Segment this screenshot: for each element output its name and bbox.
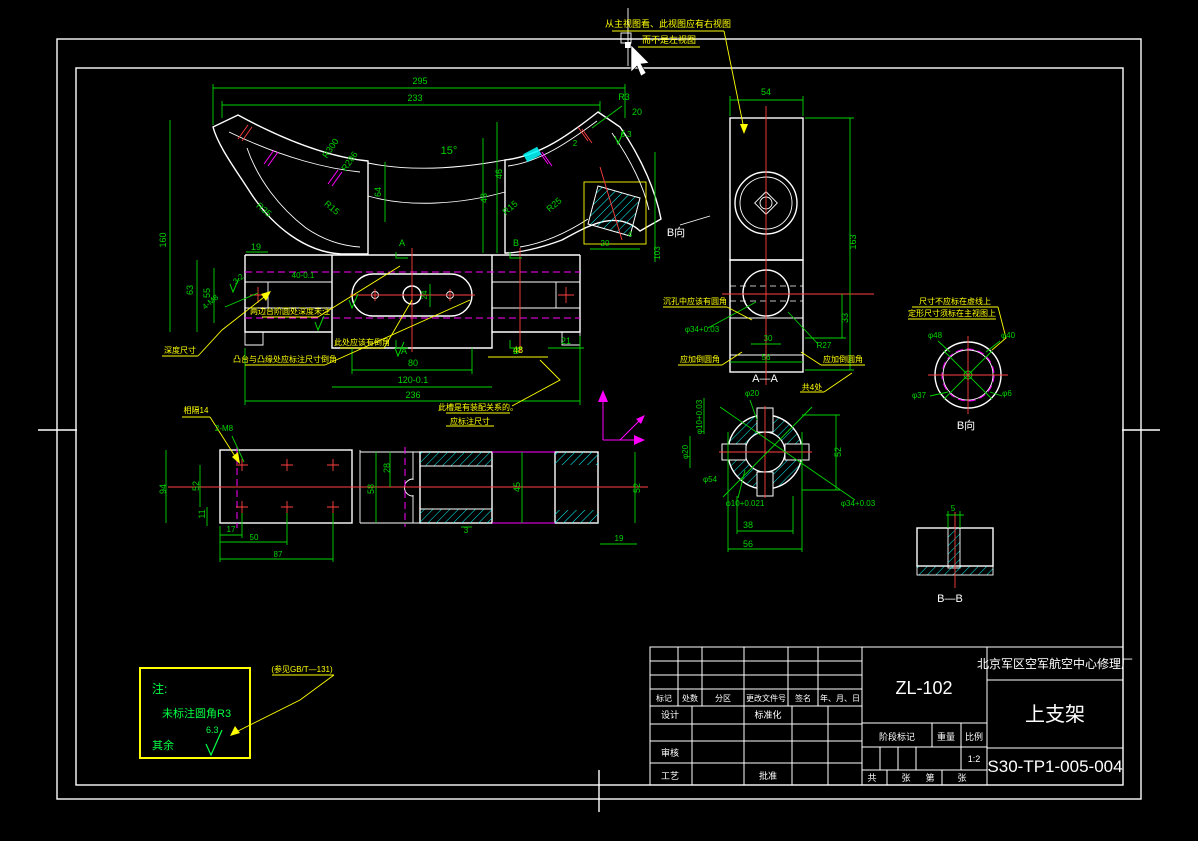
tb-sheet-unit2: 张 <box>957 773 966 783</box>
review-annotation: 相隔14 <box>184 405 209 415</box>
tb-part-name: 上支架 <box>1025 703 1085 726</box>
dimension-label: 295 <box>412 76 427 86</box>
note-line1: 未标注圆角R3 <box>162 706 231 720</box>
dimension-label: 4 <box>628 230 633 239</box>
dimension-label: B <box>513 238 519 248</box>
tb-col-mark: 标记 <box>656 693 672 703</box>
dimension-label: 52 <box>833 447 843 457</box>
review-annotation: 此处应该有倒角 <box>334 337 390 347</box>
dimension-label: 43 <box>479 193 489 203</box>
dimension-label: φ48 <box>928 331 943 340</box>
dimension-label: 19 <box>615 534 624 543</box>
view-label-b-direction: B向 <box>667 225 685 239</box>
dimension-label: 64 <box>373 187 383 197</box>
dimension-label: φ54 <box>703 475 718 484</box>
tb-model: ZL-102 <box>895 678 952 698</box>
dimension-label: 3 <box>464 526 469 535</box>
dimension-label: 20 <box>601 239 610 248</box>
tb-sheet-total-label: 共 <box>867 773 876 783</box>
tb-sheet-no-label: 第 <box>925 772 934 783</box>
dimension-label: R286 <box>339 150 360 173</box>
review-annotation: 深度尺寸 <box>164 345 196 355</box>
tb-col-zone: 分区 <box>715 694 731 703</box>
dimension-label: A <box>399 238 405 248</box>
dimension-label: φ10+0.03 <box>695 399 704 434</box>
review-annotation-leaders <box>162 31 1006 464</box>
dimension-label: 2 <box>573 139 578 148</box>
dimension-label: 11 <box>197 509 207 518</box>
dimension-label: 24 <box>420 290 429 299</box>
dimension-label: 19 <box>251 242 261 252</box>
dimension-label: 103 <box>653 246 662 260</box>
dimension-label: 52 <box>632 483 642 493</box>
dimension-label: 3.2 <box>231 272 246 286</box>
tb-col-count: 处数 <box>682 693 698 703</box>
review-annotation: 沉孔中应该有圆角 <box>663 296 727 306</box>
note-box: 注: 未标注圆角R3 其余 6.3 <box>140 668 334 758</box>
section-b-b <box>917 511 993 588</box>
tb-drawing-no: S30-TP1-005-004 <box>987 757 1122 776</box>
dimension-label: R15 <box>501 199 520 217</box>
dimension-label: 46 <box>494 169 504 179</box>
review-annotation: 尺寸不应标在虚线上 <box>919 296 991 306</box>
note-heading: 注: <box>152 681 167 696</box>
dimension-label: 80 <box>408 358 418 368</box>
dimension-label: R35 <box>254 201 273 219</box>
tb-weight-label: 重量 <box>937 731 955 742</box>
tb-stage-label: 阶段标记 <box>879 731 915 742</box>
dimension-label: R15 <box>322 199 341 217</box>
tb-role-check: 审核 <box>661 747 679 758</box>
cad-drawing-window: 注: 未标注圆角R3 其余 6.3 <box>0 0 1198 841</box>
dimension-label: 28 <box>382 463 392 473</box>
cursor-arrow-icon <box>631 45 649 76</box>
review-annotation: 应加倒圆角 <box>680 354 720 364</box>
dimension-label: 63 <box>185 285 195 295</box>
ucs-axis-icon <box>598 390 645 445</box>
review-annotation: 应加倒圆角 <box>823 354 863 364</box>
title-block: 标记 处数 分区 更改文件号 签名 年、月、日 设计 标准化 审核 工艺 批准 … <box>650 647 1133 785</box>
tb-role-approve: 批准 <box>759 770 777 781</box>
dimension-label: 2-M8 <box>215 424 234 433</box>
note-line2: 其余 <box>152 738 174 752</box>
dimension-label: 33 <box>840 313 850 323</box>
note-finish-value: 6.3 <box>206 725 219 735</box>
view-b <box>928 336 1008 414</box>
dimension-label: 20 <box>632 107 642 117</box>
tb-role-standardization: 标准化 <box>754 709 781 720</box>
dimension-label: 52 <box>191 481 201 491</box>
review-annotation: 共4处 <box>802 382 822 392</box>
dimension-label: A <box>401 346 407 356</box>
dimension-label: R27 <box>817 341 832 350</box>
dimension-label: φ40 <box>1001 331 1016 340</box>
review-annotation: (参见GB/T—131) <box>271 664 333 674</box>
dimension-label: φ10+0.021 <box>726 499 765 508</box>
dimension-label: 30 <box>764 334 773 343</box>
tb-col-date: 年、月、日 <box>820 693 860 703</box>
dimension-label: 233 <box>407 93 422 103</box>
dimension-label: 45 <box>512 482 522 492</box>
dimension-label: B <box>513 346 519 356</box>
dimension-label: φ20 <box>681 444 690 459</box>
tb-scale-label: 比例 <box>965 731 983 742</box>
dimension-label: φ6 <box>1002 389 1012 398</box>
dimension-label: 54 <box>761 87 771 97</box>
dimension-label: 50 <box>250 533 259 542</box>
dimension-label: 21 <box>561 336 571 346</box>
dimension-label: φ37 <box>912 391 927 400</box>
dimension-label: 56 <box>743 539 753 549</box>
dimension-label: 236 <box>405 390 420 400</box>
dimension-label: 58 <box>366 484 376 494</box>
dimension-label: 38 <box>743 520 753 530</box>
tb-col-file-no: 更改文件号 <box>746 693 786 703</box>
tb-sheet-unit1: 张 <box>901 773 910 783</box>
drawing-canvas: 注: 未标注圆角R3 其余 6.3 <box>0 0 1198 841</box>
review-annotation: 而不是左视图 <box>642 34 696 45</box>
review-annotation: 从主视图看、此视图应有右视图 <box>605 18 731 29</box>
view-label-section-bb: B—B <box>937 593 963 605</box>
tb-role-design: 设计 <box>661 709 679 720</box>
view-label-b-direction-2: B向 <box>957 418 975 432</box>
dimension-label: 120-0.1 <box>398 375 429 385</box>
tb-scale-value: 1:2 <box>968 754 981 764</box>
dimension-and-annotation-layer: 295233R300R28615°644643R35R15R15R25R3202… <box>158 18 1016 674</box>
review-annotation: 此槽是有装配关系的。 <box>438 402 518 412</box>
dimension-label: 6.3 <box>620 130 632 139</box>
dimension-label: 17 <box>227 525 236 534</box>
dimension-label: 15° <box>441 145 458 157</box>
dimension-label: φ34+0.03 <box>841 499 876 508</box>
review-annotation: 应标注尺寸 <box>450 416 490 426</box>
dimension-label: φ34+0.03 <box>685 325 720 334</box>
tb-col-signature: 签名 <box>795 693 811 703</box>
review-annotation: 定形尺寸须标在主视图上 <box>908 308 996 318</box>
tb-company: 北京军区空军航空中心修理厂 <box>977 656 1133 671</box>
dimension-label: 160 <box>158 232 168 247</box>
dimension-label: φ20 <box>745 389 760 398</box>
dimension-label: R300 <box>320 137 341 160</box>
dimension-label: 163 <box>848 234 858 249</box>
dimension-label: 5 <box>951 504 956 513</box>
dimension-label: 40-0.1 <box>292 271 315 280</box>
dimension-label: 94 <box>158 484 168 494</box>
dimension-label: 87 <box>274 550 283 559</box>
review-annotation: 两边台阶圆处深度未注 <box>250 306 330 316</box>
view-label-section-aa: A—A <box>752 373 778 385</box>
dimension-label: R25 <box>545 196 564 214</box>
dimension-label: R3 <box>618 92 630 102</box>
dimension-label: 56 <box>762 353 771 362</box>
review-annotation: 凸台与凸缘处应标注尺寸倒角 <box>233 354 337 364</box>
tb-role-process: 工艺 <box>661 771 679 781</box>
